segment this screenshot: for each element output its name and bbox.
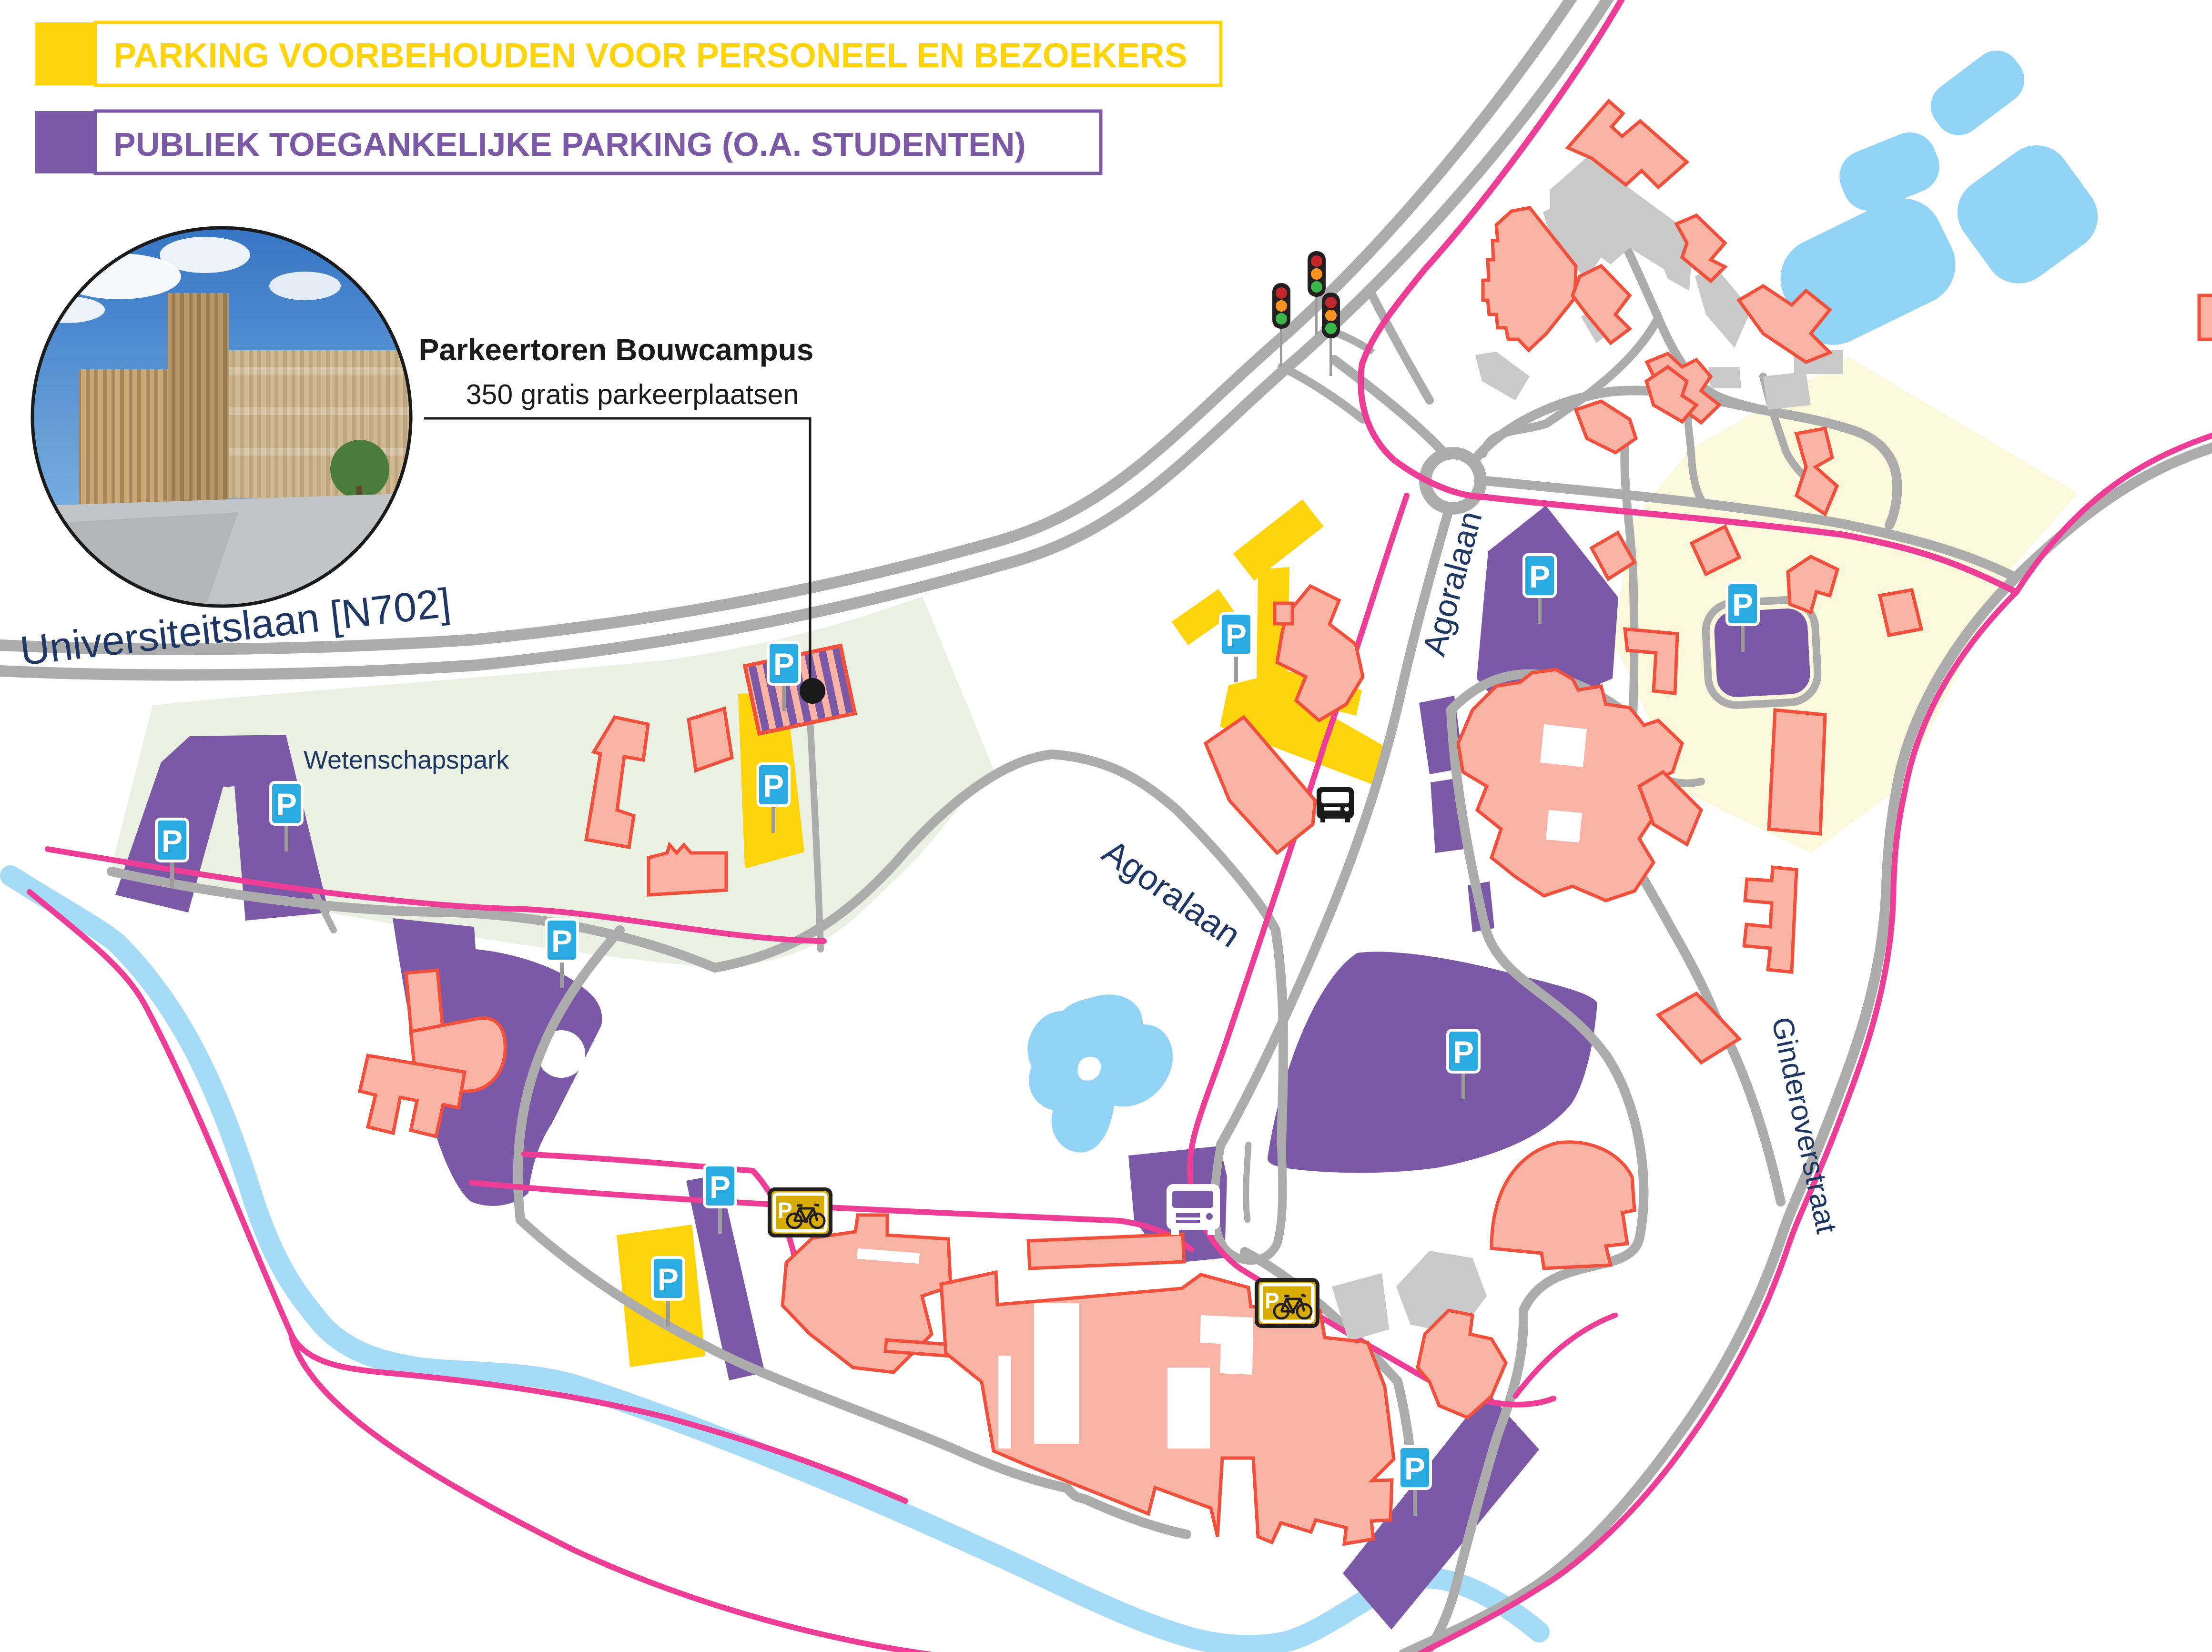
svg-text:350 gratis parkeerplaatsen: 350 gratis parkeerplaatsen <box>466 379 799 410</box>
svg-text:Wetenschapspark: Wetenschapspark <box>304 746 509 774</box>
svg-text:PARKING VOORBEHOUDEN VOOR PERS: PARKING VOORBEHOUDEN VOOR PERSONEEL EN B… <box>113 37 1187 75</box>
svg-text:PUBLIEK TOEGANKELIJKE PARKING: PUBLIEK TOEGANKELIJKE PARKING (O.A. STUD… <box>113 126 1026 163</box>
svg-text:Agoralaan: Agoralaan <box>1096 832 1248 955</box>
svg-text:Parkeertoren Bouwcampus: Parkeertoren Bouwcampus <box>419 333 814 367</box>
